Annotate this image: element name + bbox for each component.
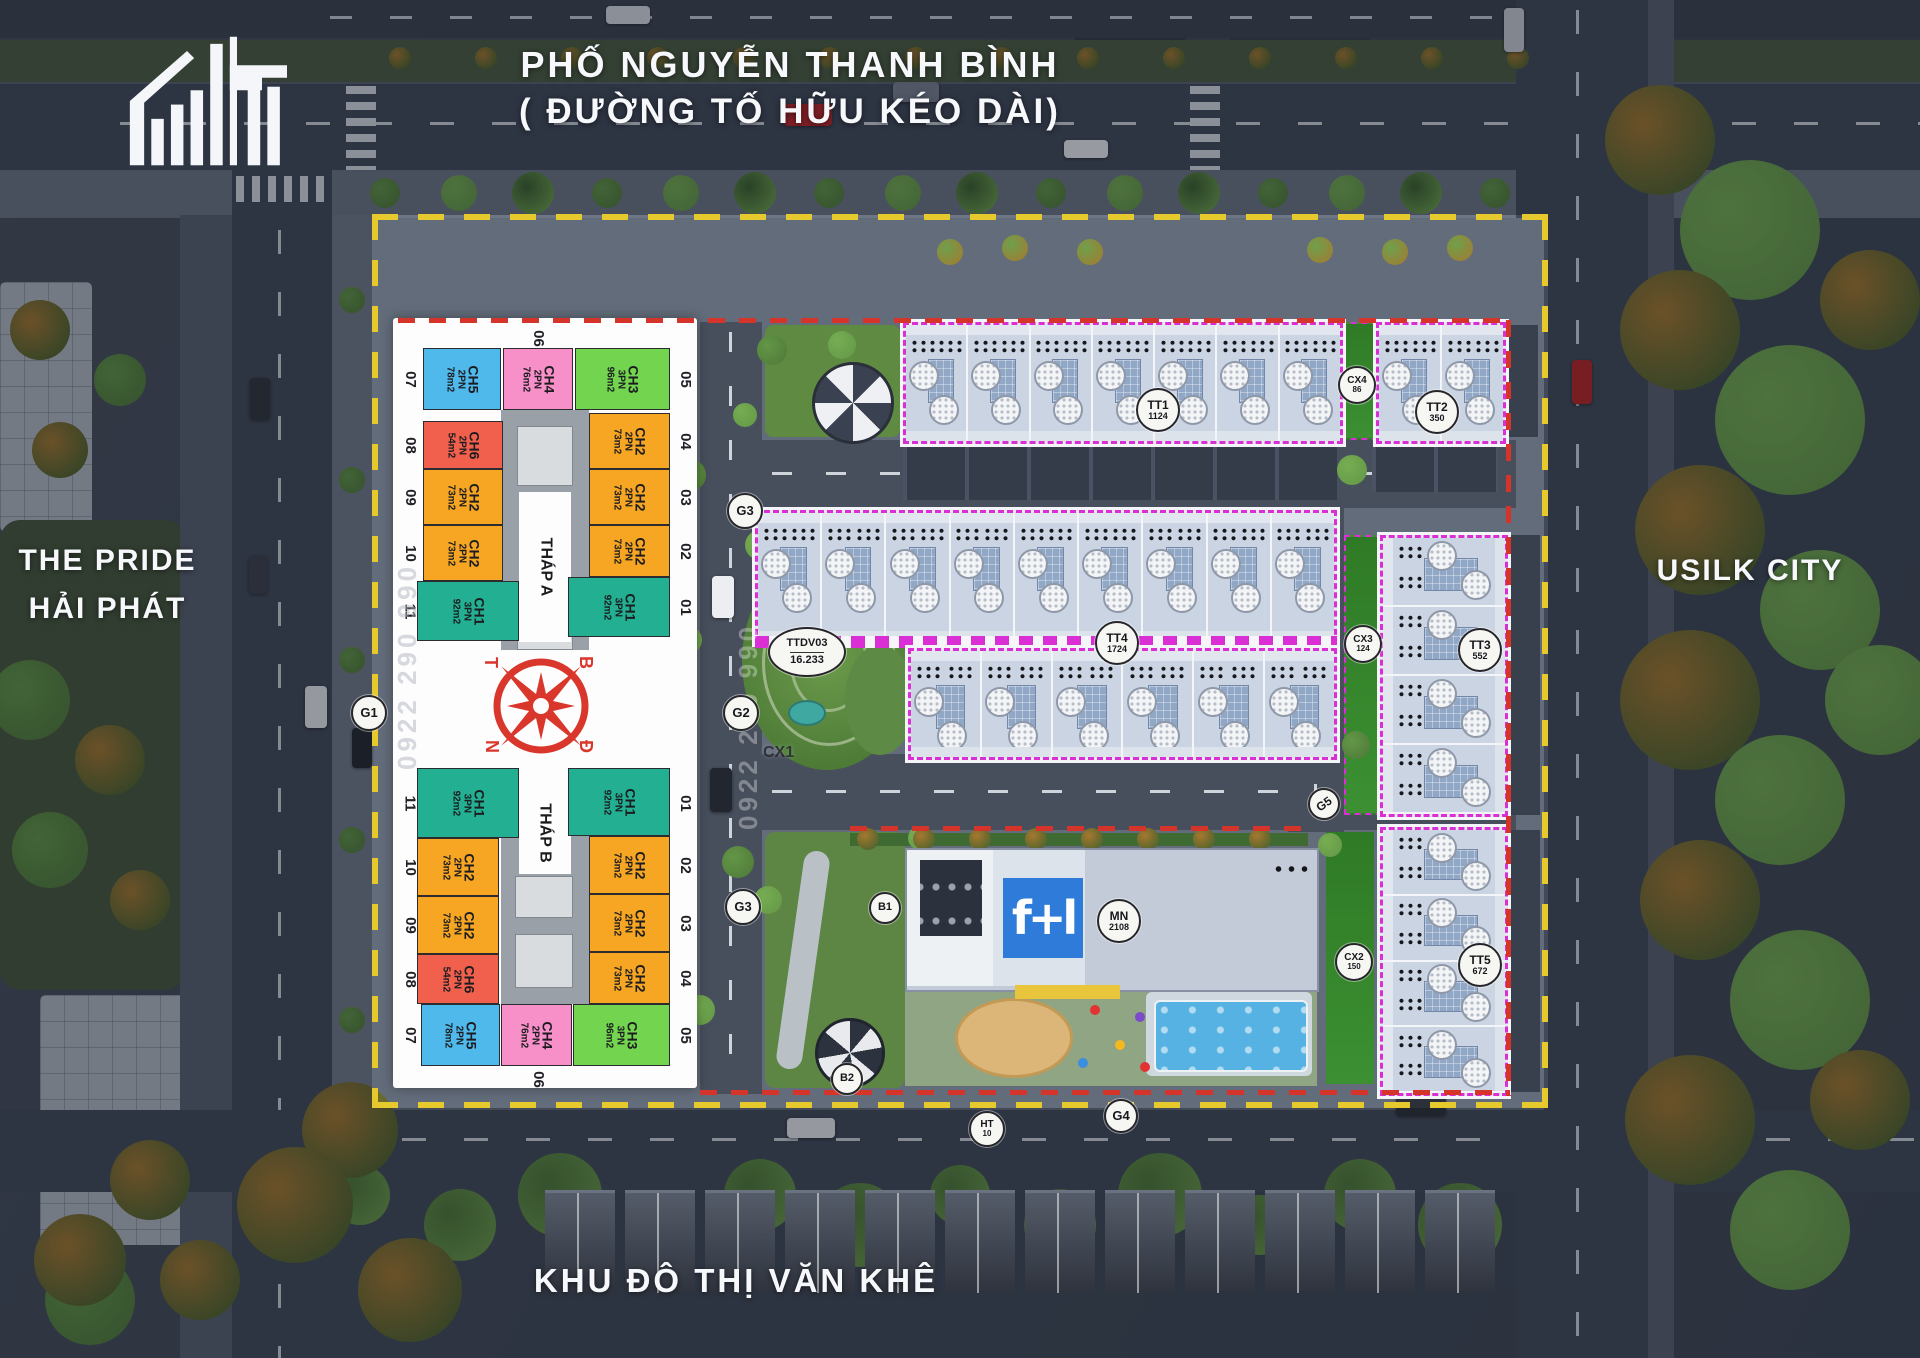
unit-label: CH22PN73m2 [440, 853, 477, 881]
skylight-dots [1397, 713, 1423, 728]
unit-CH2-09: CH22PN73m2 [417, 896, 499, 954]
play-equipment [1090, 1005, 1100, 1015]
label-CX4: CX486 [1338, 366, 1376, 404]
skylight-dots [1397, 575, 1423, 590]
roof-vent [1158, 361, 1188, 391]
tt-house [822, 513, 886, 641]
roof-strip [1383, 676, 1393, 743]
unit-label: CH42PN76m2 [518, 1021, 555, 1049]
landmark-west-line1: THE PRIDE [0, 544, 215, 578]
roof-strip [968, 325, 1028, 335]
roof-strip [982, 651, 1051, 661]
unit-label: CH13PN92m2 [601, 593, 638, 621]
roof-vent [974, 583, 1004, 613]
roof-vent [1427, 541, 1457, 571]
roof-strip [1217, 325, 1277, 335]
roof-strip [1265, 651, 1334, 661]
mn-roof-vents [920, 860, 982, 936]
roof-vent [1178, 395, 1208, 425]
tt-house [1194, 651, 1265, 757]
walkway [1495, 745, 1505, 812]
unit-number-08: 08 [399, 432, 421, 458]
tree [722, 846, 754, 878]
roof-strip [1383, 607, 1393, 674]
tt-house [1280, 325, 1340, 441]
skylight-dots [1411, 339, 1437, 354]
roof-strip [1383, 1027, 1393, 1091]
roof-vent [1167, 583, 1197, 613]
unit-CH2-04: CH22PN73m2 [589, 413, 670, 469]
tt-house [1123, 651, 1194, 757]
skylight-dots [1057, 665, 1083, 680]
tt-house [1383, 1027, 1505, 1093]
skylight-dots [1034, 339, 1060, 354]
tree [1002, 235, 1028, 261]
skylight-dots [910, 339, 936, 354]
skylight-dots [890, 527, 916, 542]
unit-number-06: 06 [527, 1066, 549, 1092]
unit-CH2-10: CH22PN73m2 [417, 838, 499, 896]
tree [1193, 828, 1215, 850]
skylight-dots [1397, 752, 1423, 767]
walkway [1093, 431, 1153, 441]
skylight-dots [1186, 339, 1212, 354]
skylight-dots [1240, 527, 1266, 542]
skylight-dots [915, 665, 941, 680]
garage-roofs [1372, 442, 1498, 492]
roof-strip [1383, 896, 1393, 960]
landmark-west-line2: HẢI PHÁT [0, 592, 215, 626]
unit-number-07: 07 [399, 1022, 421, 1048]
unit-CH2-03: CH22PN73m2 [589, 894, 670, 952]
sand-canopy [955, 998, 1073, 1078]
label-road-G2: G2 [723, 695, 759, 731]
compass-letter-east: Đ [575, 740, 596, 753]
roof-strip [1383, 745, 1393, 812]
skylight-dots [1147, 527, 1173, 542]
tt-house [951, 513, 1015, 641]
tt-house [982, 651, 1053, 757]
master-plan-canvas: f+lTHÁP ACH52PN78m207CH42PN76m206CH33PN9… [0, 0, 1920, 1358]
unit-label: CH22PN73m2 [440, 911, 477, 939]
elevator-core [517, 426, 573, 486]
tree [757, 335, 787, 365]
roof-vent [1427, 679, 1457, 709]
skylight-dots [1275, 527, 1301, 542]
unit-label: CH22PN73m2 [611, 427, 648, 455]
tree [1337, 455, 1367, 485]
walkway [1155, 431, 1215, 441]
skylight-dots [1397, 836, 1423, 851]
tt-house [1383, 830, 1505, 896]
tree [828, 331, 856, 359]
tt-house [1383, 538, 1505, 607]
tree [1447, 235, 1473, 261]
neighborhood-house [1425, 1190, 1495, 1293]
tt-house [968, 325, 1030, 441]
roof-vent [1295, 583, 1325, 613]
roof-vent [1283, 361, 1313, 391]
walkway [1123, 747, 1192, 757]
roof-strip [1208, 513, 1270, 523]
roof-vent [1275, 549, 1305, 579]
roof-vent [1427, 898, 1457, 928]
boundary-yellow [372, 214, 378, 1108]
skylight-dots [947, 665, 973, 680]
tree [1342, 731, 1370, 759]
roof-vent [782, 583, 812, 613]
roof-ridge [1297, 1193, 1299, 1293]
label-road-G1: G1 [351, 695, 387, 731]
walkway [1031, 431, 1091, 441]
unit-label: CH62PN54m2 [445, 431, 482, 459]
roof-strip [1031, 325, 1091, 335]
neighborhood-house [1185, 1190, 1255, 1293]
roof-ridge [1217, 1193, 1219, 1293]
roof-vent [1240, 395, 1270, 425]
unit-number-04: 04 [674, 965, 696, 991]
skylight-dots [1283, 339, 1309, 354]
roof-vent [1303, 395, 1333, 425]
skylight-dots [1062, 339, 1088, 354]
tt-house [1383, 676, 1505, 745]
tt-house [1272, 513, 1334, 641]
unit-number-05: 05 [674, 1022, 696, 1048]
roof-vent [890, 549, 920, 579]
skylight-dots [983, 527, 1009, 542]
unit-label: CH52PN78m2 [444, 365, 481, 393]
unit-CH1-01: CH13PN92m2 [568, 768, 670, 836]
roof-strip [1383, 830, 1393, 894]
skylight-dots [954, 527, 980, 542]
roof-strip [1194, 651, 1263, 661]
skylight-dots [1047, 527, 1073, 542]
roof-strip [1442, 325, 1503, 335]
tree [857, 828, 879, 850]
unit-CH2-04: CH22PN73m2 [589, 952, 670, 1004]
unit-label: CH13PN92m2 [450, 597, 487, 625]
skylight-dots [1083, 527, 1109, 542]
roof-vent [1427, 964, 1457, 994]
unit-CH1-11: CH13PN92m2 [417, 768, 519, 838]
label-road-B2: B2 [831, 1063, 863, 1095]
skylight-dots [937, 339, 963, 354]
skylight-dots [1397, 1062, 1423, 1077]
skylight-dots [1311, 339, 1337, 354]
roof-vent [1034, 361, 1064, 391]
unit-CH2-09: CH22PN73m2 [423, 469, 503, 525]
tt-house [1265, 651, 1334, 757]
unit-label: CH22PN73m2 [611, 483, 648, 511]
roof-strip [1143, 513, 1205, 523]
tt-house [911, 651, 982, 757]
plaza-circle [812, 362, 894, 444]
walkway [1442, 431, 1503, 441]
roof-strip [1379, 325, 1440, 335]
roof-vent [1231, 583, 1261, 613]
boundary-red [700, 1090, 1510, 1095]
roof-strip [951, 513, 1013, 523]
skylight-dots [826, 527, 852, 542]
skylight-dots [1397, 614, 1423, 629]
walkway [1280, 431, 1340, 441]
tower-name: THÁP A [536, 538, 554, 597]
skylight-dots [1269, 665, 1295, 680]
roof-vent [1103, 583, 1133, 613]
unit-CH3-05: CH33PN96m2 [573, 1004, 670, 1066]
roof-strip [906, 325, 966, 335]
watermark-phone: 0922 290 990 [392, 470, 423, 770]
roof-vent [1039, 583, 1069, 613]
tt-house [1383, 745, 1505, 814]
roof-strip [1272, 513, 1334, 523]
tree [733, 403, 757, 427]
compass-letter-north: B [575, 656, 596, 669]
garage-roofs [903, 442, 1337, 500]
unit-CH6-08: CH62PN54m2 [417, 954, 499, 1004]
skylight-dots [972, 339, 998, 354]
tree [1025, 828, 1047, 850]
label-TTDV03: TTDV0316.233 [768, 627, 846, 677]
roof-vent [1461, 708, 1491, 738]
unit-label: CH52PN78m2 [442, 1021, 479, 1049]
walkway [1265, 747, 1334, 757]
roof-vent [1056, 687, 1086, 717]
walkway [1053, 747, 1122, 757]
skylight-dots [1397, 931, 1423, 946]
skylight-dots [1397, 865, 1423, 880]
roof-vent [910, 583, 940, 613]
skylight-dots [790, 527, 816, 542]
block-TT1 [903, 322, 1343, 444]
street-name-top-line1: PHỐ NGUYỄN THANH BÌNH [390, 44, 1190, 86]
roof-strip [1280, 325, 1340, 335]
walkway [1217, 431, 1277, 441]
walkway [906, 431, 966, 441]
neighborhood-house [1105, 1190, 1175, 1293]
garden-pond [788, 700, 826, 726]
curved-garden [845, 645, 915, 755]
unit-label: CH22PN73m2 [611, 964, 648, 992]
unit-CH2-10: CH22PN73m2 [423, 525, 503, 581]
roof-vent [1445, 361, 1475, 391]
skylight-dots [1088, 665, 1114, 680]
walkway [1194, 747, 1263, 757]
tt-house [758, 513, 822, 641]
unit-number-03: 03 [674, 484, 696, 510]
roof-vent [1461, 777, 1491, 807]
label-MN: MN2108 [1097, 899, 1141, 943]
skylight-dots [1221, 339, 1247, 354]
roof-vent [846, 583, 876, 613]
skylight-dots [1000, 339, 1026, 354]
developer-logo-icon [122, 26, 302, 176]
roof-strip [1093, 325, 1153, 335]
tt-house [1217, 325, 1279, 441]
unit-CH1-01: CH13PN92m2 [568, 577, 670, 637]
boundary-yellow [372, 1102, 1548, 1108]
skylight-dots [1018, 665, 1044, 680]
unit-CH4-06: CH42PN76m2 [501, 1004, 572, 1066]
skylight-dots [1159, 339, 1185, 354]
unit-CH2-02: CH22PN73m2 [589, 836, 670, 894]
skylight-dots [919, 527, 945, 542]
play-equipment [1115, 1040, 1125, 1050]
walkway [1495, 676, 1505, 743]
roof-vent [1382, 361, 1412, 391]
label-TT2: TT2350 [1415, 390, 1459, 434]
skylight-dots [1159, 665, 1185, 680]
tt-house [1143, 513, 1207, 641]
roof-strip [1079, 513, 1141, 523]
unit-number-05: 05 [674, 366, 696, 392]
unit-label: CH33PN96m2 [603, 1021, 640, 1049]
mn-brand-logo: f+l [1003, 878, 1083, 958]
unit-number-07: 07 [399, 366, 421, 392]
roof-strip [1155, 325, 1215, 335]
roof-vent [1427, 748, 1457, 778]
skylight-dots [1304, 527, 1330, 542]
block-TT4-south [908, 648, 1337, 760]
unit-CH4-06: CH42PN76m2 [503, 348, 573, 410]
unit-label: CH22PN73m2 [611, 537, 648, 565]
unit-number-09: 09 [399, 912, 421, 938]
roof-vent [1465, 395, 1495, 425]
skylight-dots [1176, 527, 1202, 542]
label-road-G3b: G3 [725, 889, 761, 925]
roof-vent [1198, 687, 1228, 717]
roof-strip [1015, 513, 1077, 523]
walkway [968, 431, 1028, 441]
neighborhood-house [1345, 1190, 1415, 1293]
unit-label: CH13PN92m2 [601, 788, 638, 816]
boundary-yellow [1542, 214, 1548, 1108]
skylight-dots [986, 665, 1012, 680]
elevator-core [515, 876, 573, 918]
play-equipment [1135, 1012, 1145, 1022]
skylight-dots [1474, 339, 1500, 354]
tree [1077, 239, 1103, 265]
roof-strip [1383, 962, 1393, 1026]
skylight-dots [855, 527, 881, 542]
roof-vent [1461, 570, 1491, 600]
label-CX1: CX1 [763, 744, 803, 764]
tt-house [1031, 325, 1093, 441]
unit-number-04: 04 [674, 428, 696, 454]
label-TT3: TT3552 [1458, 628, 1502, 672]
unit-CH3-05: CH33PN96m2 [575, 348, 670, 410]
label-road-B1: B1 [869, 892, 901, 924]
walkway [1495, 538, 1505, 605]
roof-strip [758, 513, 820, 523]
skylight-dots [1397, 997, 1423, 1012]
skylight-dots [1446, 339, 1472, 354]
roof-vent [1461, 861, 1491, 891]
tower-corridor: THÁP B [519, 792, 571, 874]
unit-label: CH42PN76m2 [520, 365, 557, 393]
unit-label: CH62PN54m2 [440, 965, 477, 993]
skylight-dots [1397, 968, 1423, 983]
roof-vent [1461, 1058, 1491, 1088]
roof-strip [911, 651, 980, 661]
roof-vent [1082, 549, 1112, 579]
unit-number-10: 10 [399, 854, 421, 880]
pool [1154, 1000, 1308, 1072]
roof-vent [1127, 687, 1157, 717]
tt-house [886, 513, 950, 641]
roof-strip [1383, 538, 1393, 605]
mn-yellow-walk [1015, 985, 1120, 999]
tree [1307, 237, 1333, 263]
roof-vent [1018, 549, 1048, 579]
unit-label: CH22PN73m2 [611, 909, 648, 937]
skylight-dots [1397, 683, 1423, 698]
walkway [982, 747, 1051, 757]
skylight-dots [1397, 1034, 1423, 1049]
boundary-red [850, 826, 1310, 831]
roof-vent [761, 549, 791, 579]
walkway [1495, 1027, 1505, 1091]
unit-CH1-11: CH13PN92m2 [417, 581, 519, 641]
roof-vent [1053, 395, 1083, 425]
car [712, 576, 734, 618]
unit-CH6-08: CH62PN54m2 [423, 421, 503, 469]
compass-letter-west: T [480, 657, 501, 668]
play-equipment [1140, 1062, 1150, 1072]
unit-label: CH22PN73m2 [611, 851, 648, 879]
tree [1081, 828, 1103, 850]
roof-vent [991, 395, 1021, 425]
block-TT3 [1380, 535, 1508, 817]
unit-CH2-03: CH22PN73m2 [589, 469, 670, 525]
roof-vent [1461, 992, 1491, 1022]
skylight-dots [1383, 339, 1409, 354]
skylight-dots [1397, 644, 1423, 659]
label-HT: HT10 [969, 1111, 1005, 1147]
elevator-core [515, 934, 573, 988]
compass-letter-south: N [481, 740, 502, 753]
scene-layer: f+lTHÁP ACH52PN78m207CH42PN76m206CH33PN9… [0, 0, 1920, 1358]
unit-number-01: 01 [674, 790, 696, 816]
dim-right [1548, 215, 1920, 1358]
tree [1318, 833, 1342, 857]
unit-label: CH22PN73m2 [445, 539, 482, 567]
dim-left [0, 215, 372, 1358]
tt-house [1208, 513, 1272, 641]
roof-vent [1211, 549, 1241, 579]
skylight-dots [1397, 545, 1423, 560]
landmark-east: USILK CITY [1600, 554, 1900, 588]
tree [1249, 828, 1271, 850]
tt-house [1015, 513, 1079, 641]
roof-vent [909, 361, 939, 391]
skylight-dots [1230, 665, 1256, 680]
play-equipment [1078, 1058, 1088, 1068]
tree [937, 239, 963, 265]
skylight-dots [1128, 665, 1154, 680]
label-road-G4: G4 [1104, 1099, 1138, 1133]
skylight-dots [1096, 339, 1122, 354]
unit-CH5-07: CH52PN78m2 [421, 1004, 500, 1066]
roof-vent [1096, 361, 1126, 391]
unit-number-02: 02 [674, 538, 696, 564]
label-TT1: TT11124 [1136, 388, 1180, 432]
block-TT4-north [755, 510, 1337, 644]
unit-CH2-02: CH22PN73m2 [589, 525, 670, 577]
boundary-yellow [372, 214, 1548, 220]
unit-number-01: 01 [674, 594, 696, 620]
tower-name: THÁP B [536, 803, 554, 862]
